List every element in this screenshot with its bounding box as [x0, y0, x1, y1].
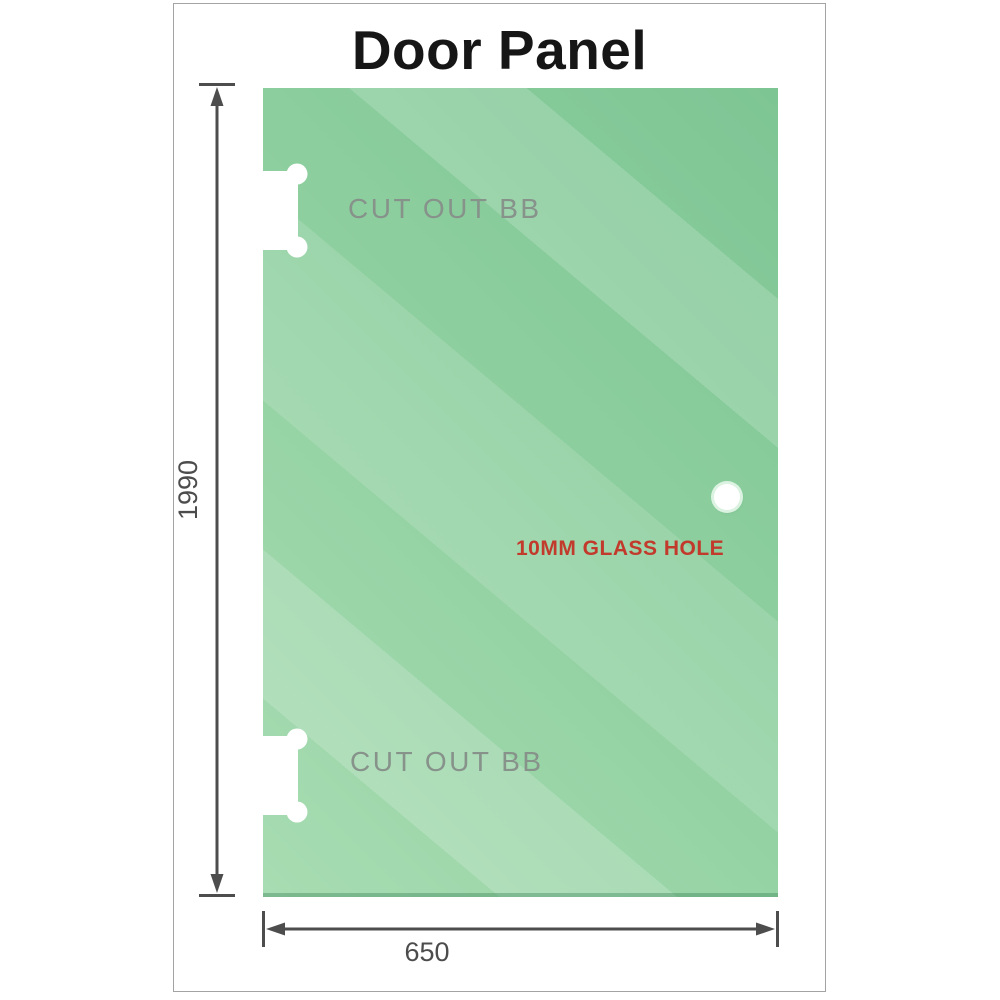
cutout-label-top: CUT OUT BB: [348, 193, 542, 225]
width-dimension-label: 650: [367, 938, 487, 966]
hinge-cutout-bottom: [262, 728, 310, 823]
cutout-label-bottom: CUT OUT BB: [350, 746, 544, 778]
glass-hole-label: 10MM GLASS HOLE: [516, 537, 724, 561]
door-panel-drawing: Door Panel CUT OUT BB CUT OUT BB 10MM GL…: [0, 0, 1000, 1000]
hinge-cutout-top: [262, 163, 310, 258]
page-title: Door Panel: [173, 18, 826, 82]
glass-hole: [714, 484, 740, 510]
height-dimension-label: 1990: [174, 430, 202, 550]
